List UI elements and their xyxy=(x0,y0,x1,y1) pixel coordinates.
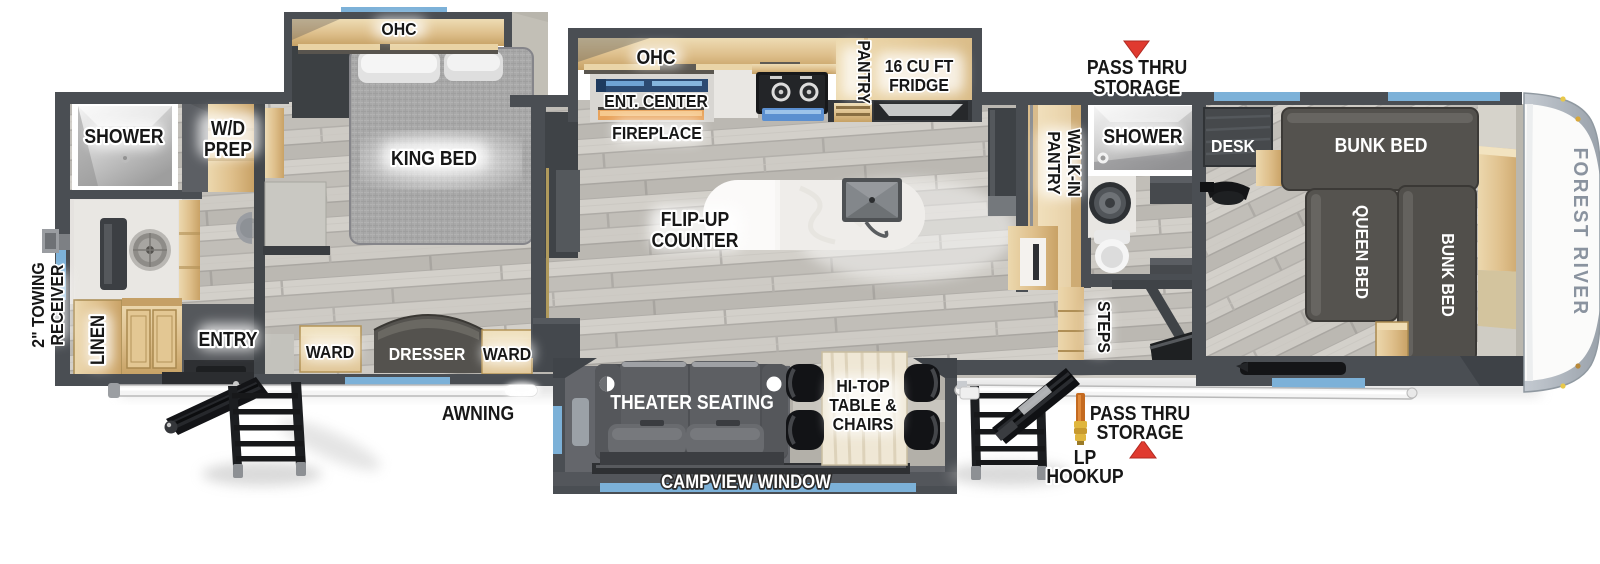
svg-text:RECEIVER: RECEIVER xyxy=(47,265,67,346)
svg-text:THEATER SEATING: THEATER SEATING xyxy=(610,391,774,413)
svg-text:BUNK BED: BUNK BED xyxy=(1438,233,1458,317)
svg-text:WALK-IN: WALK-IN xyxy=(1064,129,1084,197)
svg-text:AWNING: AWNING xyxy=(442,402,514,424)
svg-text:PANTRY: PANTRY xyxy=(1044,131,1064,195)
svg-text:STORAGE: STORAGE xyxy=(1094,76,1181,98)
svg-text:PANTRY: PANTRY xyxy=(854,40,874,104)
svg-text:PASS THRU: PASS THRU xyxy=(1087,56,1187,78)
svg-text:CAMPVIEW WINDOW: CAMPVIEW WINDOW xyxy=(661,471,831,492)
svg-text:OHC: OHC xyxy=(381,19,416,39)
svg-text:KING BED: KING BED xyxy=(391,147,477,169)
svg-text:DESK: DESK xyxy=(1211,136,1256,156)
svg-text:FIREPLACE: FIREPLACE xyxy=(612,123,702,143)
svg-text:OHC: OHC xyxy=(636,46,675,68)
svg-text:QUEEN BED: QUEEN BED xyxy=(1352,205,1372,299)
svg-text:SHOWER: SHOWER xyxy=(84,125,164,147)
svg-text:FOREST RIVER: FOREST RIVER xyxy=(1569,148,1592,317)
svg-text:HI-TOP: HI-TOP xyxy=(836,376,889,396)
svg-text:ENT. CENTER: ENT. CENTER xyxy=(604,91,708,111)
svg-text:CHAIRS: CHAIRS xyxy=(833,414,894,434)
svg-text:LINEN: LINEN xyxy=(87,315,108,365)
svg-text:DRESSER: DRESSER xyxy=(389,344,466,364)
svg-text:FRIDGE: FRIDGE xyxy=(889,75,949,95)
svg-text:STEPS: STEPS xyxy=(1094,301,1114,353)
svg-text:COUNTER: COUNTER xyxy=(652,229,739,251)
svg-text:2" TOWING: 2" TOWING xyxy=(28,262,48,347)
svg-text:BUNK BED: BUNK BED xyxy=(1335,134,1428,156)
svg-text:SHOWER: SHOWER xyxy=(1103,125,1183,147)
svg-text:16 CU FT: 16 CU FT xyxy=(885,56,954,76)
svg-text:HOOKUP: HOOKUP xyxy=(1046,465,1123,487)
svg-text:ENTRY: ENTRY xyxy=(199,328,258,350)
svg-text:FLIP-UP: FLIP-UP xyxy=(661,208,729,230)
svg-text:PREP: PREP xyxy=(204,138,252,160)
svg-text:WARD: WARD xyxy=(483,344,531,364)
svg-text:TABLE &: TABLE & xyxy=(829,395,896,415)
svg-text:W/D: W/D xyxy=(211,117,245,139)
svg-text:STORAGE: STORAGE xyxy=(1097,421,1184,443)
svg-text:WARD: WARD xyxy=(306,342,354,362)
